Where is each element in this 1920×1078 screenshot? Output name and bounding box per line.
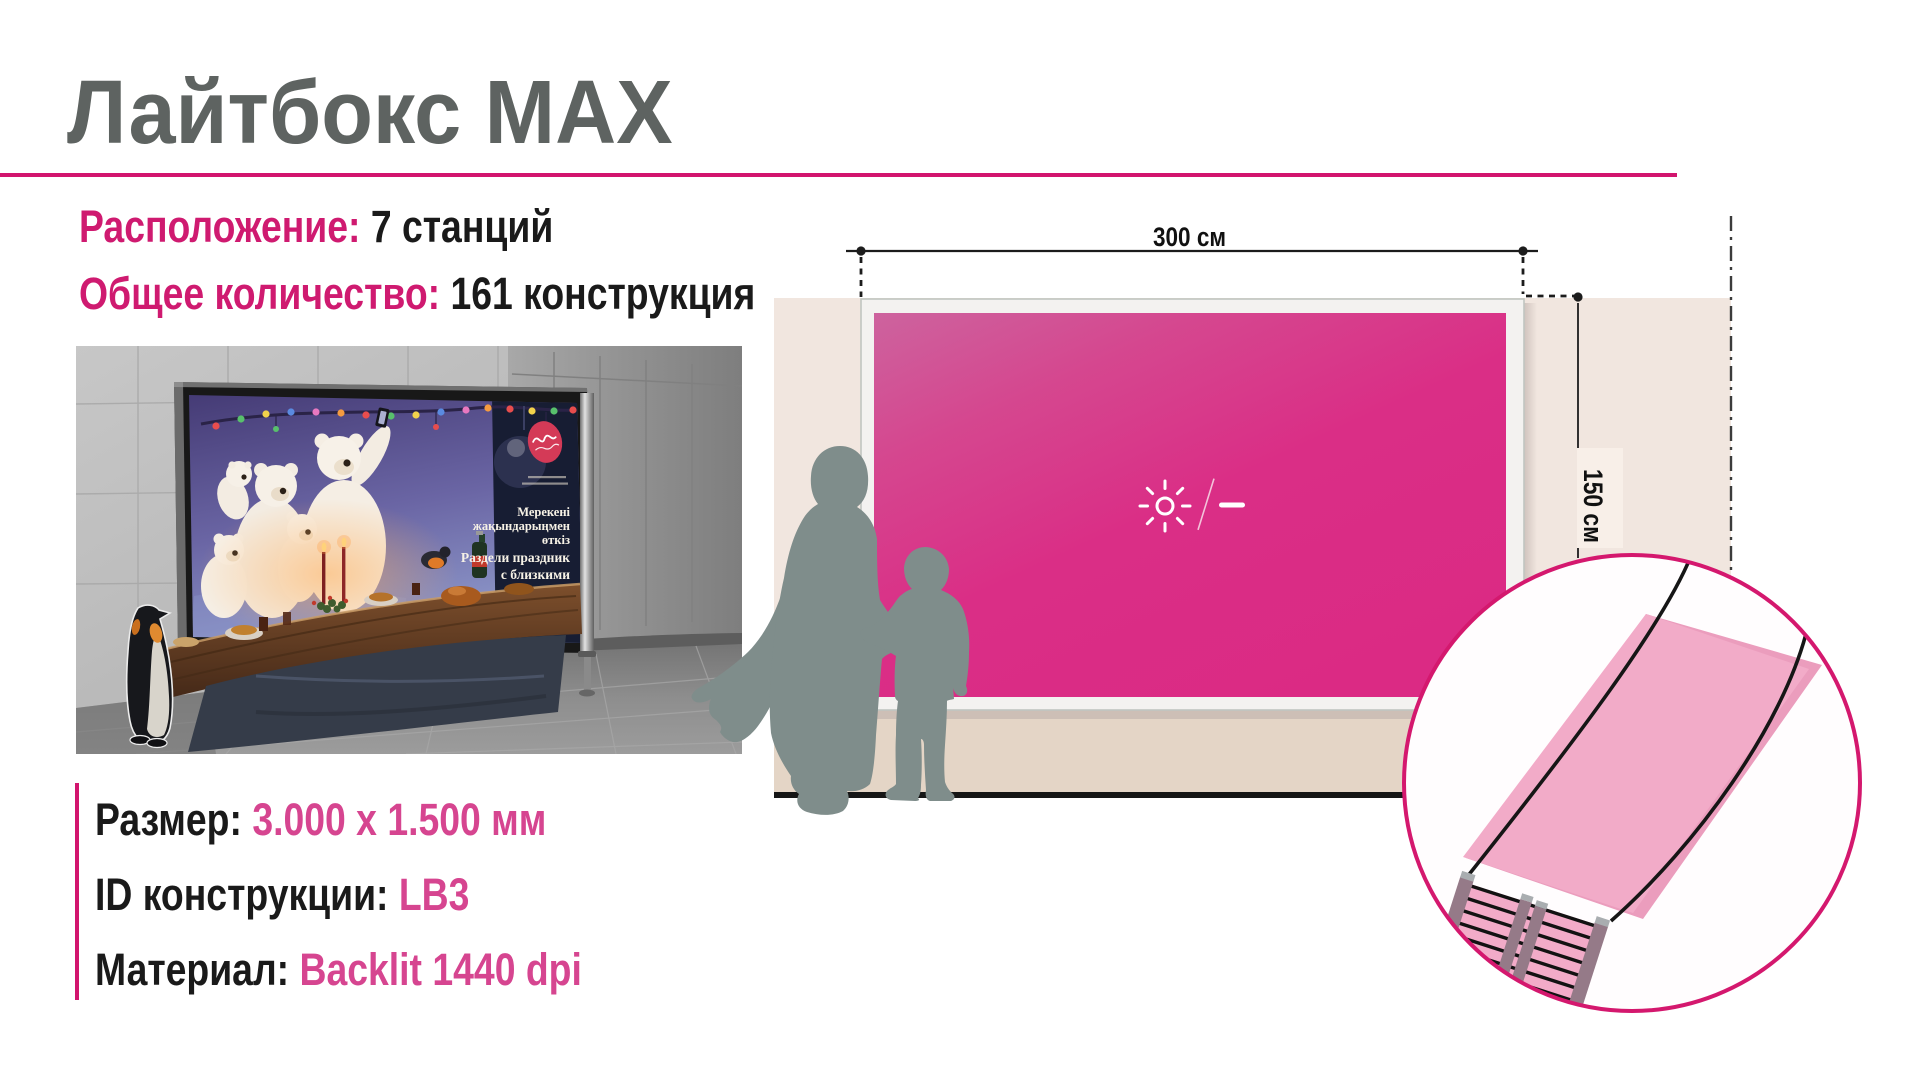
svg-text:300 см: 300 см <box>1153 222 1226 252</box>
svg-text:150 см: 150 см <box>1578 469 1608 543</box>
